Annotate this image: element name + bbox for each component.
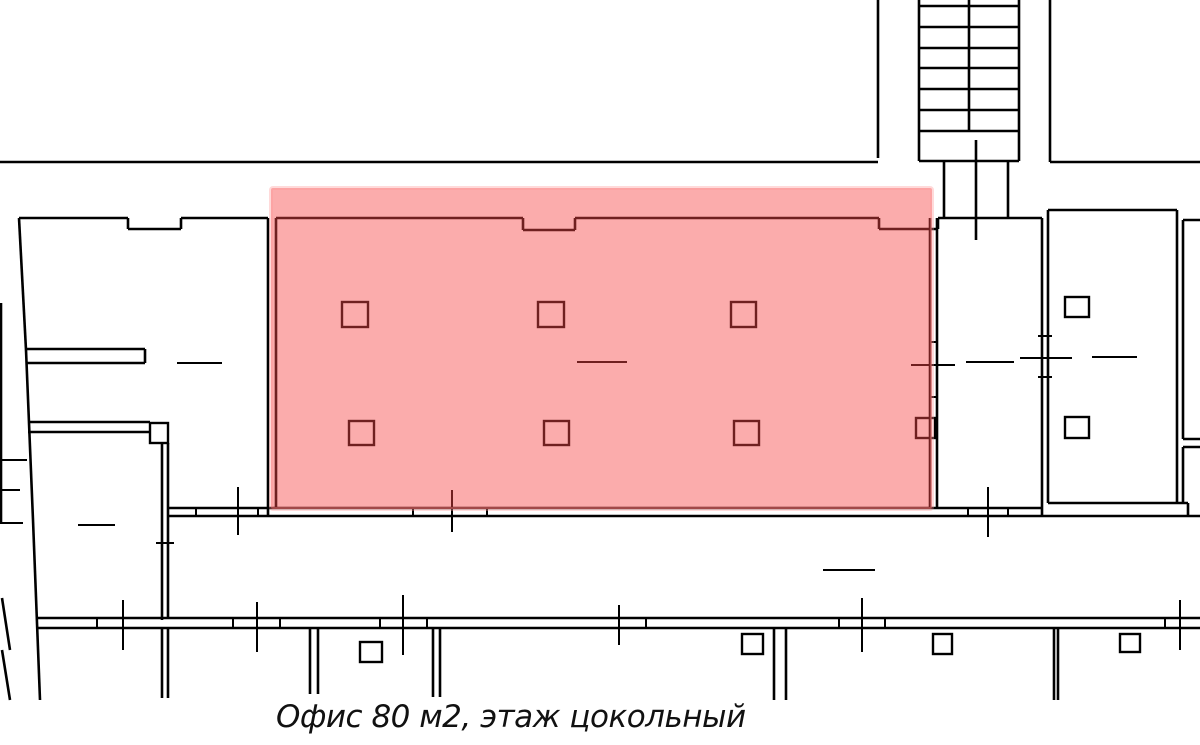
column-rect [1065, 417, 1089, 438]
floor-plan: Офис 80 м2, этаж цокольный [0, 0, 1200, 745]
wall-segment [2, 650, 10, 700]
column-rect [1120, 634, 1140, 652]
wall-segment [33, 520, 40, 700]
office-highlight[interactable] [271, 188, 932, 509]
wall-segment [26, 350, 33, 520]
floor-plan-drawing [0, 0, 1200, 745]
wall-segment [19, 218, 26, 350]
column-rect [742, 634, 763, 654]
column-rect [933, 634, 952, 654]
plan-caption: Офис 80 м2, этаж цокольный [276, 699, 746, 735]
wall-segment [2, 598, 10, 650]
column-rect [150, 423, 168, 443]
column-rect [1065, 297, 1089, 317]
column-rect [360, 642, 382, 662]
